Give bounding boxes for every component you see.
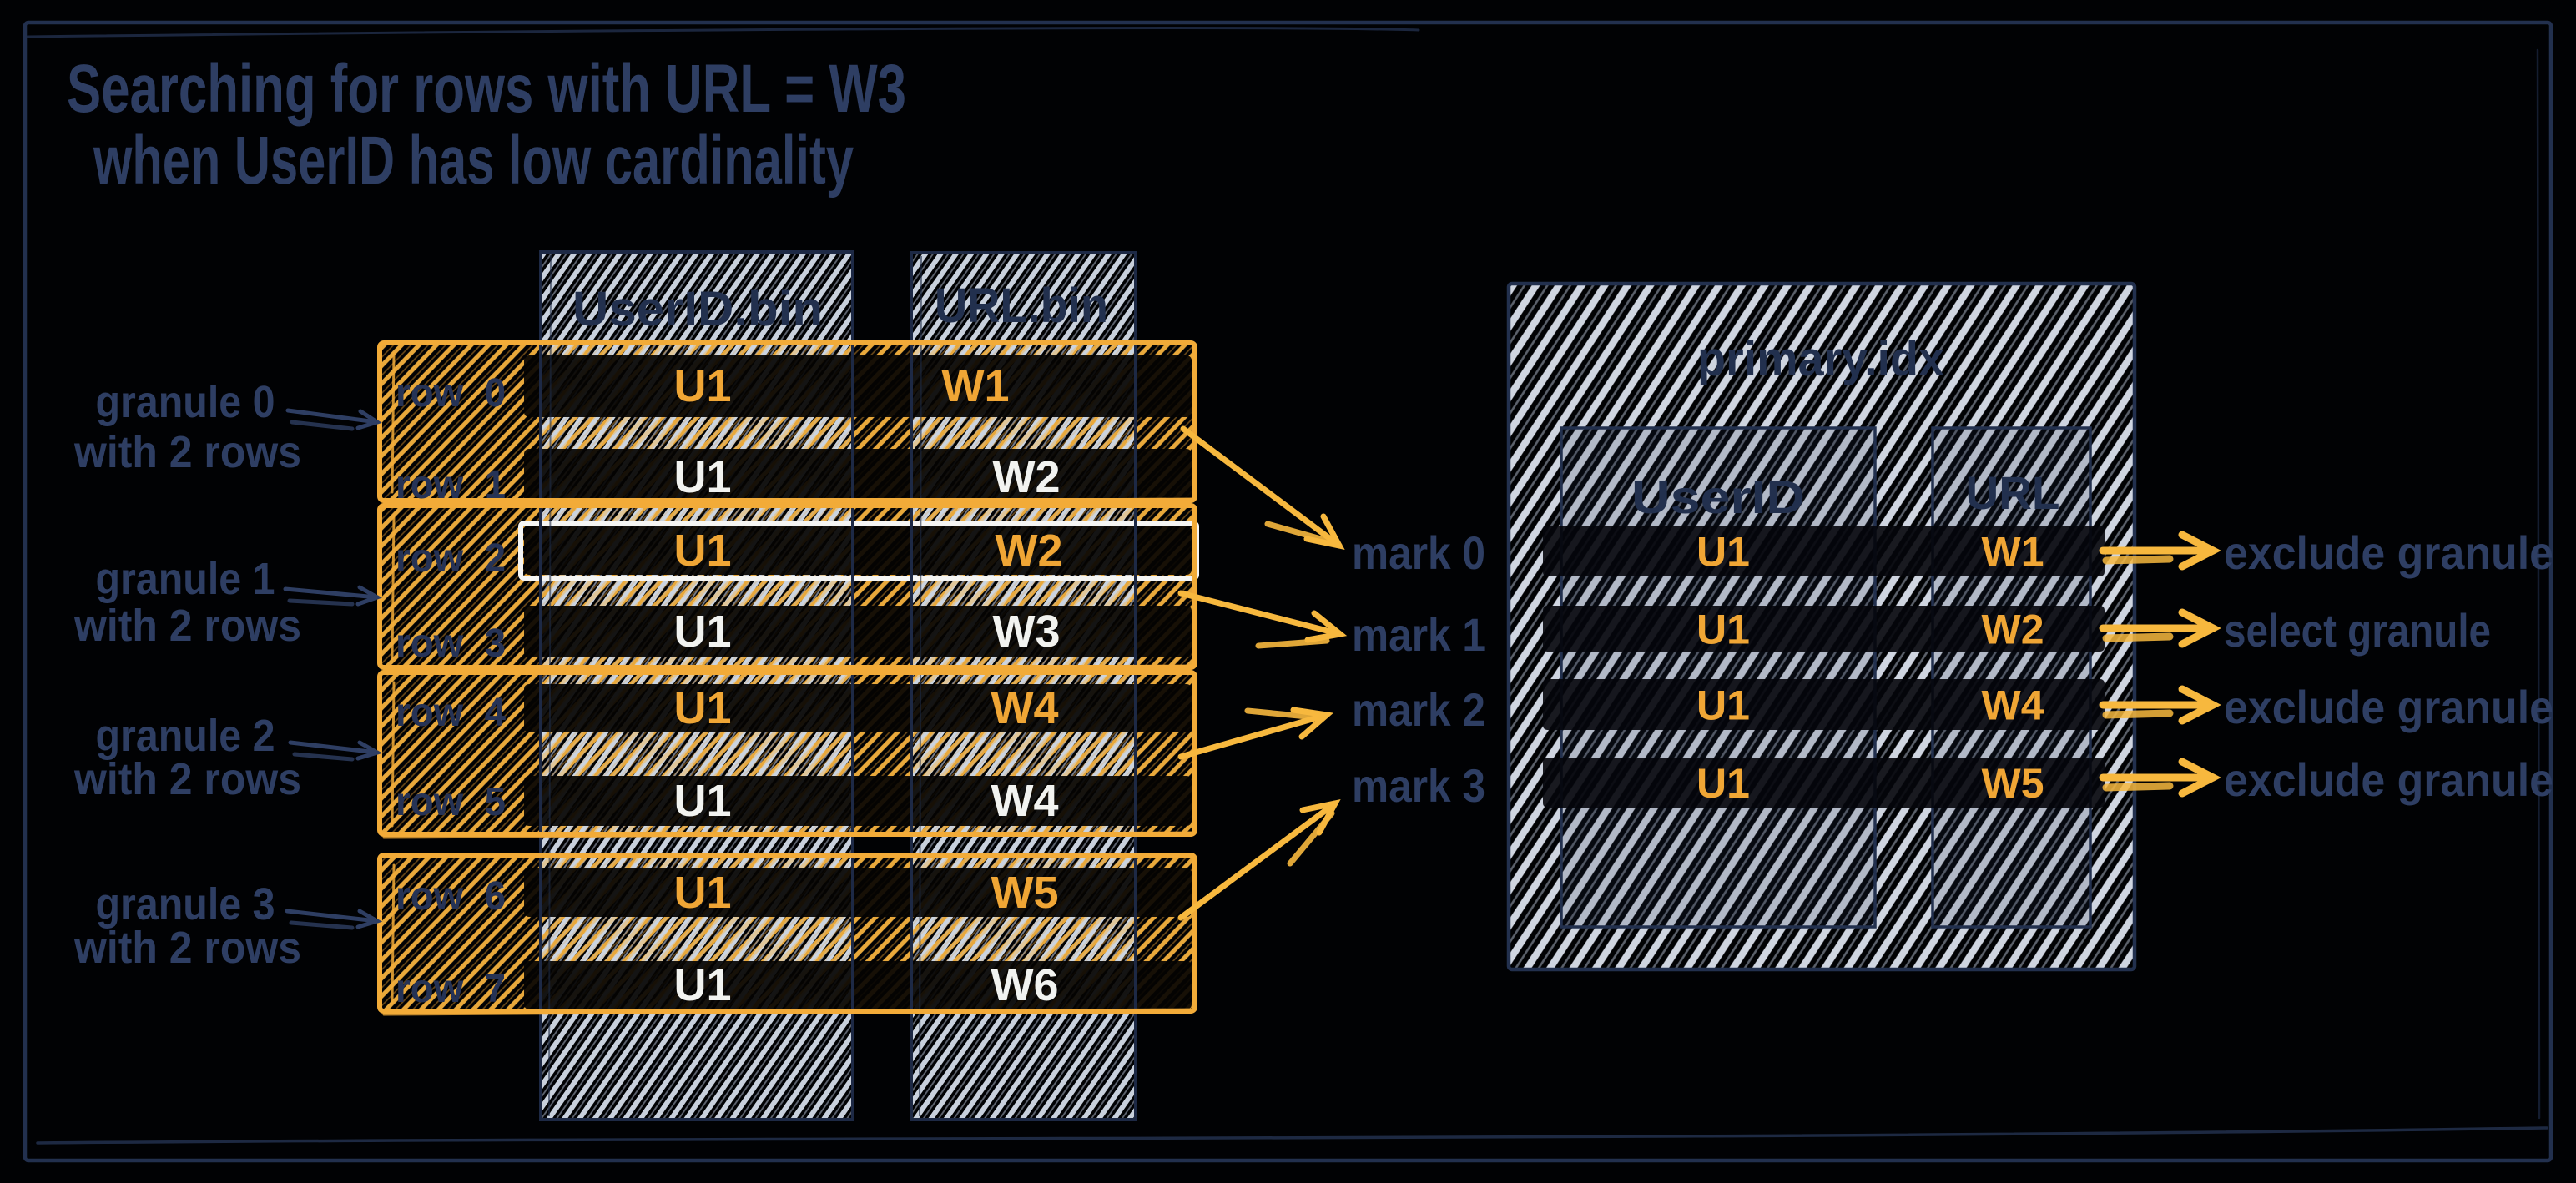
- svg-text:row 4: row 4: [396, 691, 506, 735]
- svg-text:U1: U1: [1696, 682, 1750, 729]
- svg-text:mark 2: mark 2: [1352, 683, 1485, 736]
- svg-text:Searching for rows with URL =: Searching for rows with URL = W3: [67, 51, 906, 127]
- svg-text:UserID.bin: UserID.bin: [572, 282, 823, 336]
- svg-text:W1: W1: [1982, 529, 2044, 576]
- svg-text:U1: U1: [673, 526, 731, 576]
- svg-text:W6: W6: [991, 960, 1059, 1010]
- svg-text:row 5: row 5: [396, 780, 506, 824]
- svg-text:W1: W1: [942, 361, 1010, 411]
- svg-text:mark 1: mark 1: [1352, 608, 1485, 661]
- svg-text:U1: U1: [673, 683, 731, 733]
- svg-text:primary.idx: primary.idx: [1697, 332, 1944, 386]
- svg-text:U1: U1: [673, 960, 731, 1010]
- svg-text:row 3: row 3: [396, 622, 506, 666]
- svg-text:with 2 rows: with 2 rows: [73, 923, 301, 973]
- svg-text:U1: U1: [1696, 760, 1750, 807]
- svg-text:exclude granule: exclude granule: [2224, 526, 2553, 579]
- svg-text:U1: U1: [1696, 607, 1750, 653]
- svg-text:with 2 rows: with 2 rows: [73, 601, 301, 651]
- svg-text:with 2 rows: with 2 rows: [73, 754, 301, 804]
- svg-text:row 0: row 0: [396, 371, 506, 415]
- svg-text:W2: W2: [996, 526, 1063, 576]
- svg-text:W2: W2: [993, 452, 1061, 502]
- svg-text:U1: U1: [1696, 529, 1750, 576]
- svg-text:URL.bin: URL.bin: [935, 279, 1108, 333]
- svg-text:U1: U1: [673, 868, 731, 918]
- svg-text:row 7: row 7: [396, 967, 506, 1011]
- svg-text:W4: W4: [1982, 682, 2044, 729]
- svg-text:UserID: UserID: [1631, 471, 1805, 523]
- svg-text:W2: W2: [1982, 607, 2044, 653]
- svg-text:exclude granule: exclude granule: [2224, 753, 2553, 806]
- svg-text:with 2 rows: with 2 rows: [73, 427, 301, 477]
- svg-text:U1: U1: [673, 452, 731, 502]
- svg-text:row 1: row 1: [396, 463, 506, 507]
- svg-text:URL: URL: [1966, 466, 2060, 519]
- svg-text:granule 0: granule 0: [96, 377, 275, 427]
- svg-text:granule 1: granule 1: [96, 554, 275, 604]
- svg-text:granule 2: granule 2: [96, 711, 275, 761]
- svg-text:row 6: row 6: [396, 874, 506, 919]
- svg-text:W4: W4: [991, 683, 1059, 733]
- svg-text:W5: W5: [1982, 760, 2044, 807]
- svg-text:when UserID has low cardinalit: when UserID has low cardinality: [93, 123, 854, 199]
- svg-text:select granule: select granule: [2224, 604, 2491, 657]
- svg-text:W5: W5: [991, 868, 1059, 918]
- svg-text:U1: U1: [673, 607, 731, 657]
- svg-text:W3: W3: [993, 607, 1061, 657]
- svg-text:U1: U1: [673, 361, 731, 411]
- svg-text:mark 0: mark 0: [1352, 526, 1485, 579]
- svg-text:W4: W4: [991, 776, 1059, 826]
- svg-text:mark 3: mark 3: [1352, 759, 1485, 812]
- svg-text:granule 3: granule 3: [96, 879, 275, 929]
- svg-text:exclude granule: exclude granule: [2224, 681, 2553, 733]
- svg-text:U1: U1: [673, 776, 731, 826]
- svg-text:row 2: row 2: [396, 536, 506, 581]
